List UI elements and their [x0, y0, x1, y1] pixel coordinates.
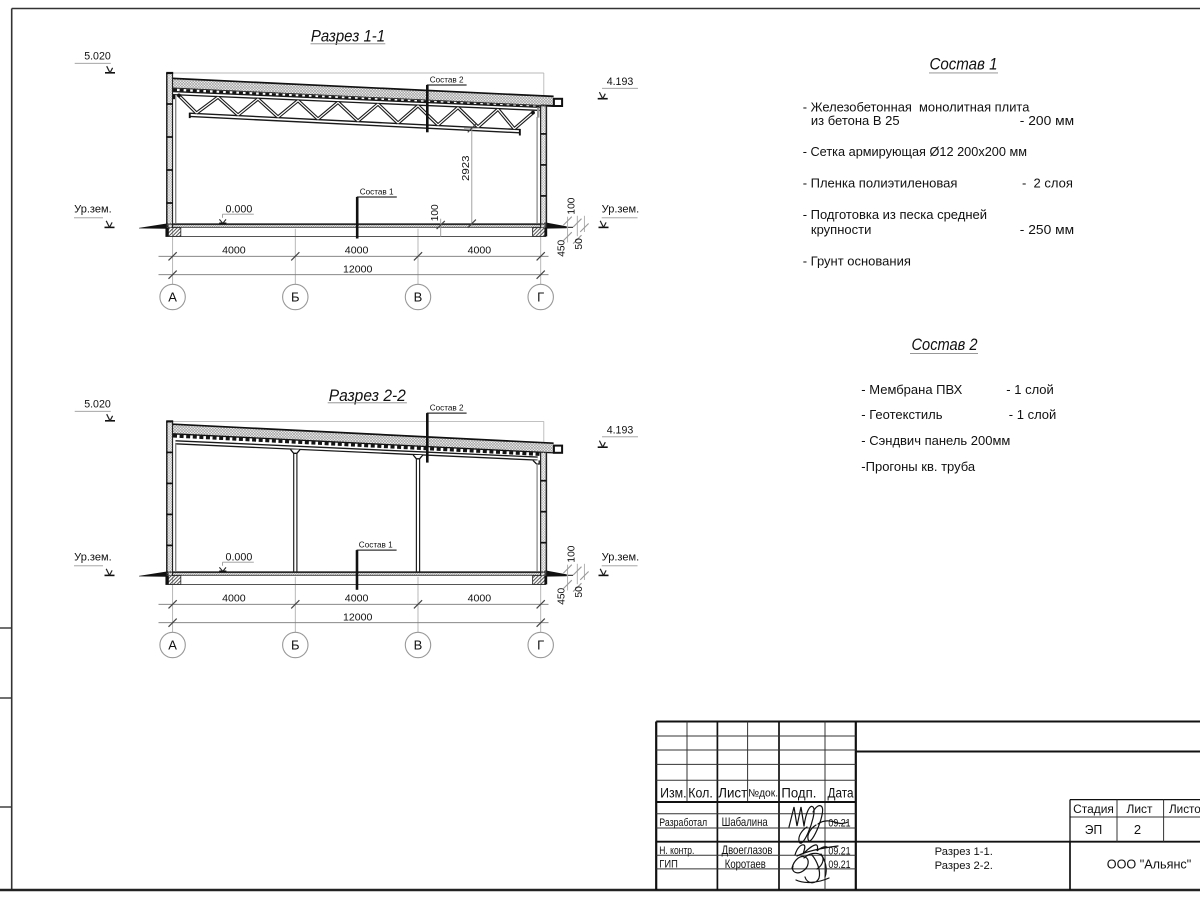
svg-text:Двоеглазов: Двоеглазов	[722, 844, 773, 857]
svg-text:4000: 4000	[468, 592, 492, 604]
svg-text:из бетона В 25: из бетона В 25	[811, 113, 900, 128]
svg-text:0.000: 0.000	[226, 552, 253, 564]
svg-text:Листов: Листов	[1169, 804, 1200, 816]
svg-text:- 200 мм: - 200 мм	[1020, 113, 1074, 128]
svg-text:Изм.: Изм.	[660, 785, 687, 800]
svg-text:Г: Г	[537, 290, 544, 305]
svg-text:- Грунт основания: - Грунт основания	[803, 253, 911, 268]
svg-text:Коротаев: Коротаев	[725, 858, 766, 871]
svg-text:Н. контр.: Н. контр.	[659, 845, 694, 857]
svg-text:Разработал: Разработал	[659, 817, 707, 829]
svg-text:Состав 1: Состав 1	[359, 540, 393, 550]
svg-text:Состав 2: Состав 2	[430, 402, 464, 412]
svg-text:- Сетка армирующая Ø12 200х200: - Сетка армирующая Ø12 200х200 мм	[803, 144, 1027, 159]
svg-text:Стадия: Стадия	[1073, 804, 1114, 816]
svg-text:Ур.зем.: Ур.зем.	[602, 204, 640, 216]
svg-text:Г: Г	[537, 638, 544, 653]
svg-text:Кол.: Кол.	[688, 785, 713, 800]
svg-text:№док.: №док.	[748, 787, 778, 799]
svg-text:0.000: 0.000	[226, 204, 253, 216]
svg-text:- 2 слоя: - 2 слоя	[1022, 176, 1073, 191]
svg-text:50: 50	[573, 586, 585, 598]
svg-text:5.020: 5.020	[84, 51, 111, 63]
svg-text:- Сэндвич панель 200мм: - Сэндвич панель 200мм	[861, 433, 1010, 448]
svg-text:ГИП: ГИП	[659, 858, 678, 870]
svg-text:450: 450	[556, 588, 568, 605]
svg-text:Состав 2: Состав 2	[430, 74, 464, 84]
svg-text:100: 100	[429, 204, 441, 221]
svg-text:- Железобетонная монолитная п: - Железобетонная монолитная плита	[803, 99, 1030, 114]
svg-text:Ур.зем.: Ур.зем.	[74, 204, 112, 216]
svg-text:Лист: Лист	[718, 785, 747, 800]
svg-text:ЭП: ЭП	[1085, 822, 1102, 837]
svg-text:50: 50	[573, 238, 585, 250]
svg-text:- 1 слой: - 1 слой	[1006, 382, 1054, 397]
svg-text:4000: 4000	[345, 592, 369, 604]
svg-text:Ур.зем.: Ур.зем.	[74, 552, 112, 564]
svg-text:09.21: 09.21	[828, 859, 850, 871]
svg-text:- 250 мм: - 250 мм	[1020, 222, 1074, 237]
svg-text:А: А	[168, 638, 177, 653]
svg-text:4000: 4000	[345, 244, 369, 256]
svg-text:крупности: крупности	[811, 222, 871, 237]
svg-text:Шабалина: Шабалина	[722, 816, 768, 829]
svg-text:ООО "Альянс": ООО "Альянс"	[1107, 857, 1192, 872]
svg-text:4.193: 4.193	[607, 425, 634, 437]
svg-text:Состав 2: Состав 2	[912, 335, 979, 354]
svg-text:12000: 12000	[343, 612, 373, 624]
svg-text:Разрез 2-2: Разрез 2-2	[329, 386, 406, 405]
svg-text:Состав 1: Состав 1	[930, 54, 998, 73]
svg-text:Б: Б	[291, 638, 300, 653]
svg-text:Состав 1: Состав 1	[360, 187, 394, 197]
svg-text:4000: 4000	[222, 592, 246, 604]
svg-text:В: В	[414, 638, 423, 653]
svg-text:В: В	[414, 290, 423, 305]
svg-text:Ур.зем.: Ур.зем.	[602, 552, 640, 564]
svg-text:450: 450	[556, 240, 568, 257]
svg-text:- Геотекстиль: - Геотекстиль	[861, 407, 942, 422]
svg-text:2: 2	[1134, 822, 1141, 837]
svg-text:4000: 4000	[222, 244, 246, 256]
svg-text:Дата: Дата	[828, 785, 854, 800]
svg-text:Разрез 1-1: Разрез 1-1	[311, 27, 385, 46]
svg-text:Разрез 2-2.: Разрез 2-2.	[935, 860, 993, 872]
svg-text:-Прогоны кв. труба: -Прогоны кв. труба	[861, 459, 976, 474]
svg-text:100: 100	[566, 545, 578, 562]
svg-text:- Подготовка из песка средней: - Подготовка из песка средней	[803, 207, 987, 222]
svg-text:Б: Б	[291, 290, 300, 305]
svg-text:- 1 слой: - 1 слой	[1009, 407, 1057, 422]
svg-text:4.193: 4.193	[607, 76, 634, 88]
svg-text:100: 100	[566, 197, 578, 214]
svg-text:4000: 4000	[468, 244, 492, 256]
svg-text:- Пленка полиэтиленовая: - Пленка полиэтиленовая	[803, 176, 958, 191]
svg-text:Подп.: Подп.	[781, 785, 816, 800]
svg-text:12000: 12000	[343, 264, 373, 276]
svg-text:5.020: 5.020	[84, 399, 111, 411]
svg-text:А: А	[168, 290, 177, 305]
svg-text:2923: 2923	[460, 155, 472, 181]
svg-text:Лист: Лист	[1127, 804, 1154, 816]
svg-text:- Мембрана ПВХ: - Мембрана ПВХ	[861, 382, 962, 397]
svg-text:Разрез 1-1.: Разрез 1-1.	[935, 846, 993, 858]
